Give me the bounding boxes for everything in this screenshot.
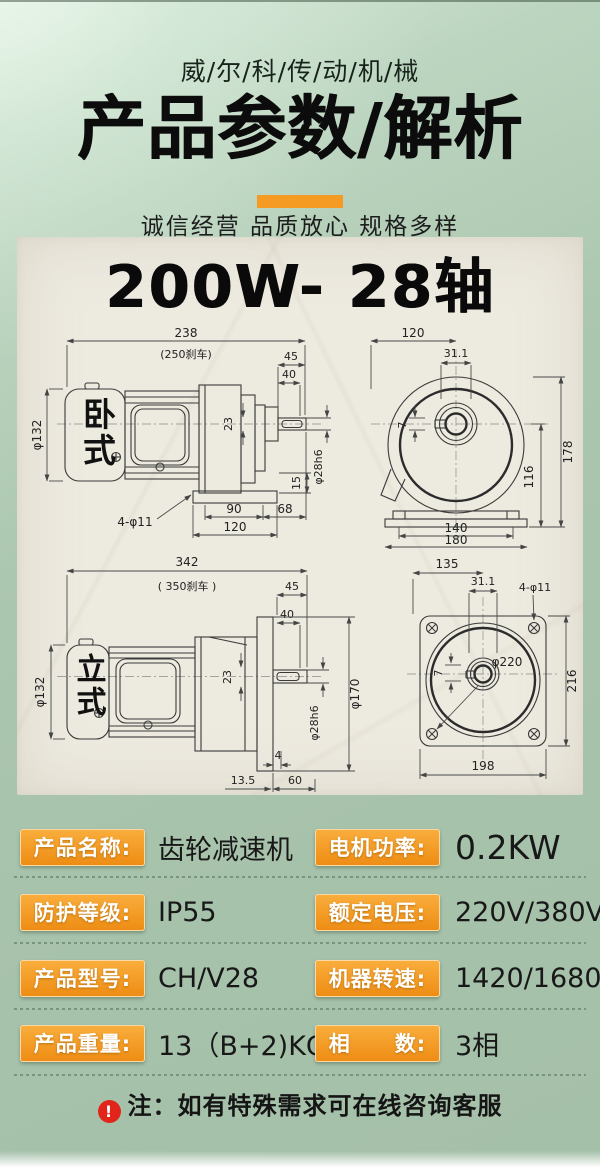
dim-4: 4: [275, 749, 282, 762]
dim-120: 120: [224, 520, 247, 534]
dim-40: 40: [282, 368, 296, 381]
dim-45v: 45: [285, 580, 299, 593]
technical-drawing-panel: 200W- 28轴: [17, 237, 583, 795]
spec-value: 齿轮减速机: [145, 828, 315, 867]
horizontal-side-view-drawing: 238 (250刹车) 45 40 φ132 23 φ28h6 15: [19, 327, 349, 549]
dim-31-1v: 31.1: [471, 575, 496, 588]
spec-row-product-name: 产品名称: 齿轮减速机 电机功率: 0.2KW: [20, 828, 585, 866]
dim-4-dia11: 4-φ11: [117, 515, 152, 529]
dim-dia132v: φ132: [33, 677, 47, 708]
vertical-type-label: 立式: [71, 652, 106, 719]
spec-label-chip: 电机功率:: [315, 829, 440, 866]
vertical-side-view-drawing: 342 ( 350刹车 ) 45 40 φ132 23 φ170 φ28h6: [19, 553, 379, 795]
spec-value: 3相: [440, 1024, 499, 1063]
spec-value: CH/V28: [145, 963, 315, 994]
dim-key7v: 7: [432, 670, 445, 677]
spec-label-chip: 机器转速:: [315, 960, 440, 997]
horizontal-end-view-drawing: 120 31.1 7 178 116 140 180: [343, 327, 581, 549]
dim-116: 116: [522, 466, 536, 489]
dim-178: 178: [561, 441, 575, 464]
dim-90: 90: [226, 502, 241, 516]
dim-180: 180: [445, 533, 468, 547]
note-text: 注：如有特殊需求可在线咨询客服: [128, 1092, 503, 1120]
dim-23: 23: [222, 417, 235, 431]
dim-15: 15: [290, 476, 303, 490]
spec-value: 220V/380V: [440, 897, 600, 928]
dim-238: 238: [175, 327, 198, 340]
spec-label-chip: 防护等级:: [20, 894, 145, 931]
spec-value: 1420/1680r: [440, 963, 600, 994]
dim-40v: 40: [280, 608, 294, 621]
dim-4-dia11v: 4-φ11: [519, 581, 551, 594]
service-note: !注：如有特殊需求可在线咨询客服: [0, 1086, 600, 1123]
spec-row-protection: 防护等级: IP55 额定电压: 220V/380V: [20, 893, 585, 931]
dim-120f: 120: [402, 327, 425, 340]
dim-key7: 7: [396, 422, 409, 429]
dim-60: 60: [288, 774, 302, 787]
dim-45: 45: [284, 350, 298, 363]
dim-dia132: φ132: [30, 420, 44, 451]
page-subtitle: 诚信经营 品质放心 规格多样: [0, 207, 600, 241]
vertical-flange-view-drawing: 135 31.1 4-φ11 φ220 7 216 198: [383, 553, 581, 795]
page-title: 产品参数/解析: [0, 86, 600, 172]
spec-value: 0.2KW: [440, 828, 561, 867]
spec-value: 13（B+2)KG: [145, 1024, 315, 1063]
dotted-divider: [14, 942, 586, 944]
spec-value: IP55: [145, 897, 315, 928]
spec-label-chip: 产品型号:: [20, 960, 145, 997]
dim-250-brake: (250刹车): [160, 347, 212, 361]
dim-31-1: 31.1: [444, 347, 469, 360]
dim-dia170: φ170: [348, 679, 362, 710]
horizontal-type-label: 卧式: [78, 397, 117, 469]
drawing-title: 200W- 28轴: [17, 239, 583, 324]
alert-icon: !: [98, 1100, 121, 1123]
dim-342: 342: [176, 555, 199, 569]
dim-dia28h6: φ28h6: [312, 449, 325, 484]
spec-label-chip: 产品名称:: [20, 829, 145, 866]
product-spec-infographic: 威/尔/科/传/动/机/械 产品参数/解析 诚信经营 品质放心 规格多样 200…: [0, 0, 600, 1169]
dim-135: 135: [436, 557, 459, 571]
dim-68: 68: [277, 502, 292, 516]
dim-198: 198: [472, 759, 495, 773]
dotted-divider: [14, 1074, 586, 1076]
spec-label-chip: 额定电压:: [315, 894, 440, 931]
dim-216: 216: [565, 670, 579, 693]
dotted-divider: [14, 876, 586, 878]
dim-dia220: φ220: [492, 655, 523, 669]
dim-13-5: 13.5: [231, 774, 256, 787]
dim-23v: 23: [221, 670, 234, 684]
dim-350-brake: ( 350刹车 ): [158, 579, 217, 593]
spec-row-model: 产品型号: CH/V28 机器转速: 1420/1680r: [20, 959, 585, 997]
spec-row-weight: 产品重量: 13（B+2)KG 相 数: 3相: [20, 1024, 585, 1062]
dim-dia28h6v: φ28h6: [308, 705, 321, 740]
dotted-divider: [14, 1008, 586, 1010]
brand-line: 威/尔/科/传/动/机/械: [0, 52, 600, 88]
spec-label-chip: 相 数:: [315, 1025, 440, 1062]
spec-label-chip: 产品重量:: [20, 1025, 145, 1062]
